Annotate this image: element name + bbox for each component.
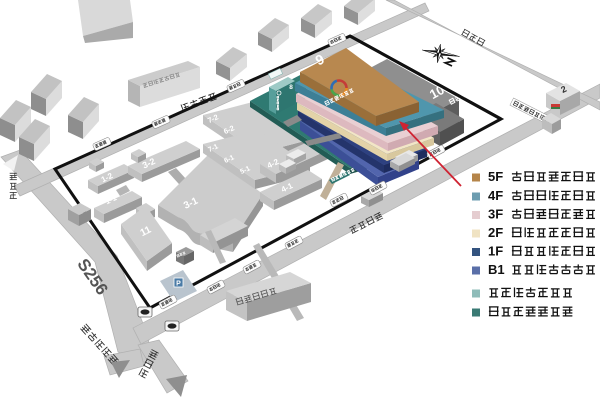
svg-text:1F: 1F [488, 244, 503, 259]
svg-text:4F: 4F [488, 188, 503, 203]
svg-text:8: 8 [289, 84, 293, 91]
svg-text:2F: 2F [488, 225, 503, 240]
svg-text:5F: 5F [488, 169, 503, 184]
svg-text:P: P [176, 281, 181, 288]
svg-text:B1: B1 [488, 262, 505, 277]
svg-text:3F: 3F [488, 207, 503, 222]
